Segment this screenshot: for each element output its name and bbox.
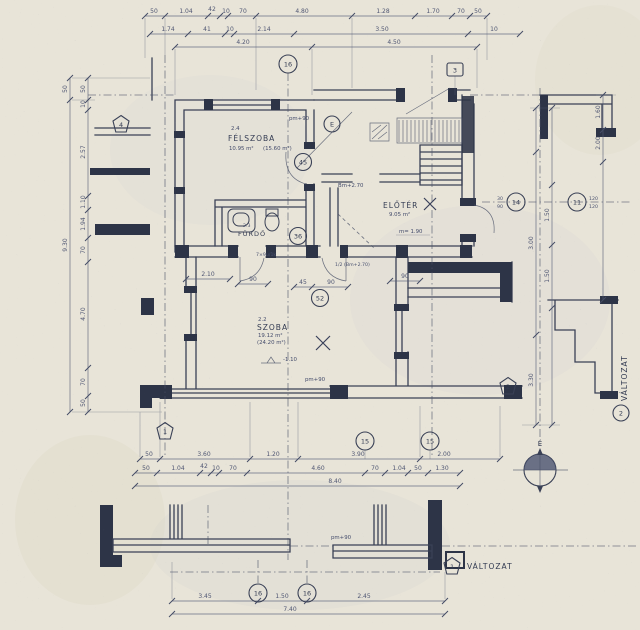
paper-grain bbox=[0, 0, 640, 630]
scanned-floor-plan-page: 50 1.04 42 10 70 4.80 1.28 1.70 70 50 1.… bbox=[0, 0, 640, 630]
floor-plan-canvas: 50 1.04 42 10 70 4.80 1.28 1.70 70 50 1.… bbox=[0, 0, 640, 630]
